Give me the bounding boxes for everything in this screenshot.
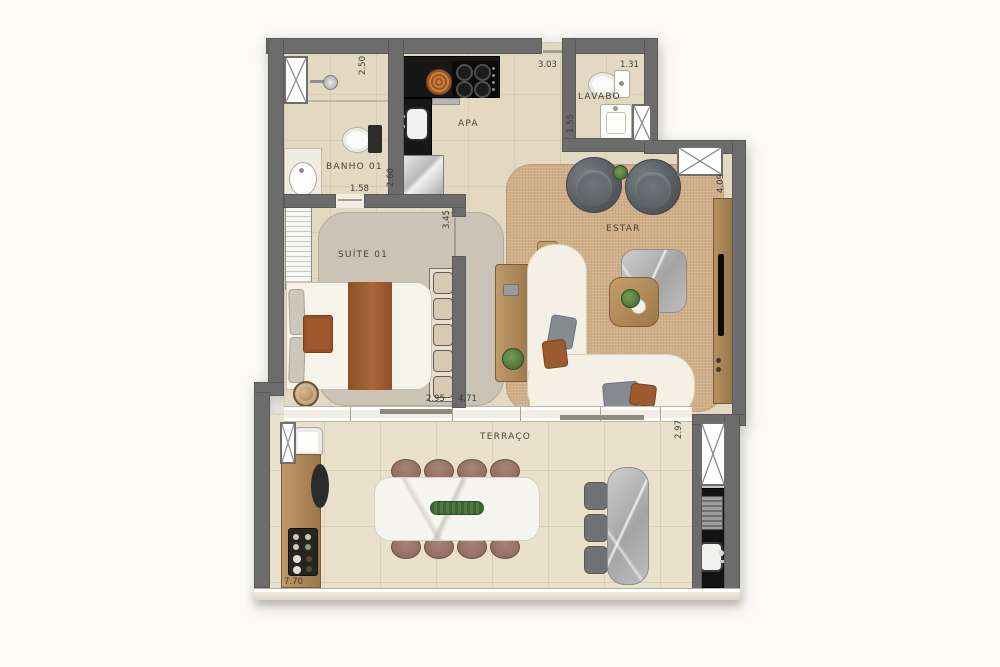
dim-banho-depth: 2.50 (358, 56, 368, 75)
lavabo-flush-icon (619, 81, 624, 86)
bbq-grill (700, 496, 723, 530)
wardrobe-shelf (433, 272, 453, 294)
armchair (566, 157, 622, 213)
sliding-doors (284, 406, 692, 422)
sofa-pillow (541, 339, 568, 370)
room-label-lavabo: LAVABO (578, 92, 621, 102)
terrace-railing (254, 588, 740, 600)
room-label-terraco: TERRAÇO (480, 432, 531, 442)
suite-door-leaf (454, 218, 456, 256)
suite-side-table (293, 381, 319, 407)
room-label-kitchen: APA (458, 119, 479, 129)
floor-plan-drawing: BANHO 01 APA LAVABO SUÍTE 01 ESTAR TERRA… (0, 0, 1000, 667)
kitchen-sink (405, 107, 429, 141)
estar-tv (718, 254, 724, 336)
shower-glass-line (306, 100, 388, 102)
wall (254, 392, 270, 588)
room-label-estar: ESTAR (606, 224, 641, 234)
sofa-pillow (629, 382, 657, 407)
console-knob-icon (716, 367, 721, 372)
wall (452, 256, 466, 408)
armchair (625, 159, 681, 215)
dim-suite-width: 2.95 (426, 394, 445, 404)
wardrobe-shelf (433, 298, 453, 320)
bbq-sink (699, 542, 723, 572)
room-label-suite: SUÍTE 01 (338, 250, 388, 260)
shaft-hatch-icon (700, 422, 726, 486)
plant-icon (621, 289, 640, 308)
window-hatch-icon (677, 146, 723, 176)
bar-table (607, 467, 649, 585)
wall (724, 414, 740, 592)
dim-kitchen-top: 3.03 (538, 60, 557, 70)
wall (732, 140, 746, 426)
bar-stool (584, 514, 608, 542)
sliding-door-panel (380, 409, 452, 414)
dim-hall-depth: 3.45 (442, 210, 452, 229)
dim-lavabo-depth: 1.55 (566, 114, 576, 133)
wall (268, 38, 284, 394)
lavabo-basin-inner (606, 112, 626, 134)
shaft-hatch-icon (280, 422, 296, 464)
dim-terraco-width: 7.70 (284, 577, 303, 587)
shaft-hatch-icon (632, 104, 652, 142)
floor-plan: BANHO 01 APA LAVABO SUÍTE 01 ESTAR TERRA… (0, 0, 1000, 667)
dim-estar-width: 4.71 (458, 394, 477, 404)
shower-head-icon (323, 75, 338, 90)
dim-lavabo-width: 1.31 (620, 60, 639, 70)
wardrobe-shelf (433, 324, 453, 346)
banho-door-leaf (338, 199, 362, 201)
dim-kitchen-depth: 2.60 (386, 168, 396, 187)
banho-door (336, 194, 364, 208)
dim-terraco-depth: 2.97 (674, 420, 684, 439)
wall (562, 38, 576, 152)
dim-banho-door: 1.58 (350, 184, 369, 194)
bar-stool (584, 546, 608, 574)
cooktop (452, 61, 498, 97)
lavabo-faucet-icon (613, 106, 618, 111)
kitchen-shelf (432, 98, 460, 105)
grill-control-panel (288, 528, 318, 576)
grill-hood (311, 464, 329, 508)
bar-stool (584, 482, 608, 510)
terrace-sink (293, 427, 323, 457)
wardrobe-shelf (433, 350, 453, 372)
console-knob-icon (716, 358, 721, 363)
table-runner (430, 501, 484, 515)
bed-tray (303, 315, 333, 353)
decor-plate-icon (426, 69, 452, 95)
plant-icon (502, 348, 524, 370)
sliding-door-panel (560, 415, 644, 420)
wall (452, 207, 466, 217)
banho-basin (289, 162, 317, 196)
banho-faucet-icon (299, 168, 304, 173)
bed-runner (348, 282, 392, 390)
suite-hanger-closet (285, 206, 312, 290)
shaft-hatch-icon (284, 56, 308, 104)
wall (266, 38, 542, 54)
room-label-banho: BANHO 01 (326, 162, 383, 172)
console-decor (503, 284, 519, 296)
wall (284, 194, 336, 208)
plant-icon (613, 165, 628, 180)
dim-estar-depth: 4.09 (716, 174, 726, 193)
banho-toilet-tank (368, 125, 382, 153)
wall (364, 194, 466, 208)
